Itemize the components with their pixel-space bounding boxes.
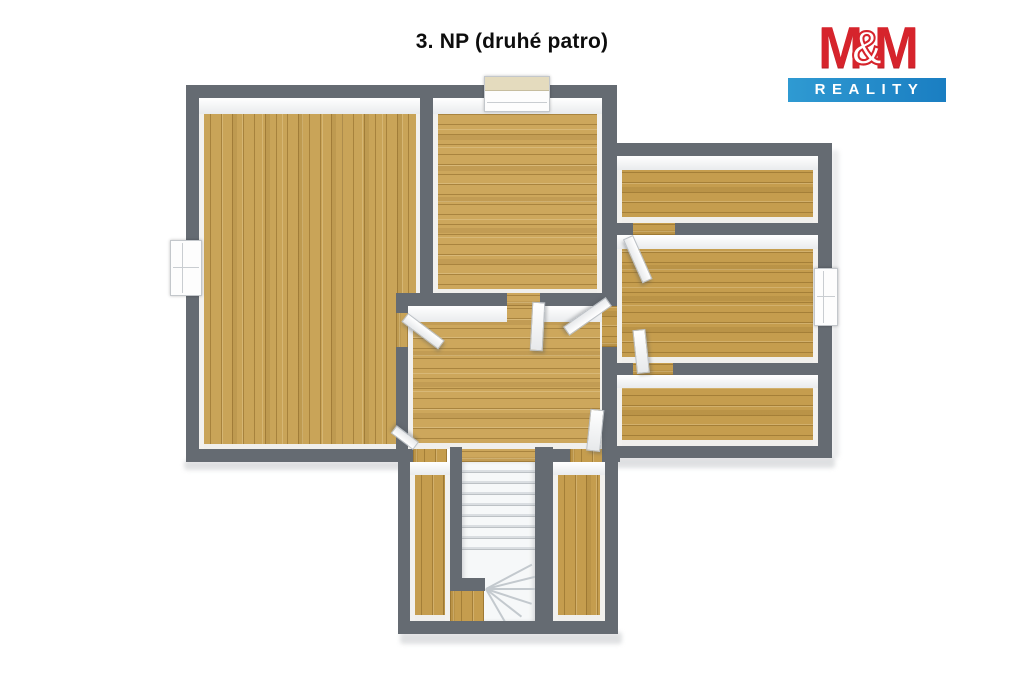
stair-wall (450, 447, 462, 580)
wall-face (617, 235, 818, 249)
window (484, 76, 550, 112)
wall-face (553, 462, 605, 475)
wall (617, 223, 633, 235)
wall (605, 462, 618, 634)
wall (398, 621, 618, 634)
wall (398, 462, 410, 634)
floor-plan-page: 3. NP (druhé patro) M&M REALITY (0, 0, 1024, 683)
room-large-left (199, 98, 421, 450)
wall (186, 449, 413, 462)
wall (617, 363, 633, 375)
stair-treads (462, 462, 535, 554)
wall (186, 85, 617, 98)
door-threshold (633, 223, 675, 235)
wall (602, 85, 617, 303)
wall (396, 293, 507, 306)
room-right-middle (617, 235, 818, 363)
stair-wall (535, 447, 553, 622)
room-top-center (433, 98, 602, 295)
wall (602, 347, 617, 462)
wall-face (199, 98, 421, 114)
wall (396, 299, 408, 313)
wall-face (617, 156, 818, 170)
wall (673, 363, 818, 375)
wall-face (408, 306, 507, 322)
logo-reality-banner: REALITY (788, 78, 946, 102)
wall (420, 85, 433, 306)
wall-face (410, 462, 450, 475)
window-bar (487, 102, 547, 103)
room-bottom-right (553, 462, 605, 621)
wall (675, 223, 818, 235)
wall (553, 449, 570, 462)
window-bar (823, 271, 824, 323)
wall (602, 143, 830, 156)
window-bar (817, 296, 835, 297)
stair-opening-floor (462, 449, 535, 462)
stair-wall (450, 578, 485, 591)
wall-face (617, 375, 818, 388)
room-bottom-left (410, 462, 450, 621)
room-bottom-left-extension (450, 591, 484, 621)
window-sill (485, 77, 549, 91)
logo-mm-wordmark: M&M (788, 20, 946, 78)
window-bar (173, 267, 199, 268)
window (814, 268, 838, 326)
door-leaf (530, 302, 546, 352)
window-bar (182, 243, 183, 293)
door-threshold (413, 449, 447, 462)
window (170, 240, 202, 296)
wall (602, 446, 832, 458)
stair-winder-edge (485, 588, 522, 617)
ampersand-glyph: & (851, 21, 883, 77)
brand-logo: M&M REALITY (788, 22, 946, 102)
